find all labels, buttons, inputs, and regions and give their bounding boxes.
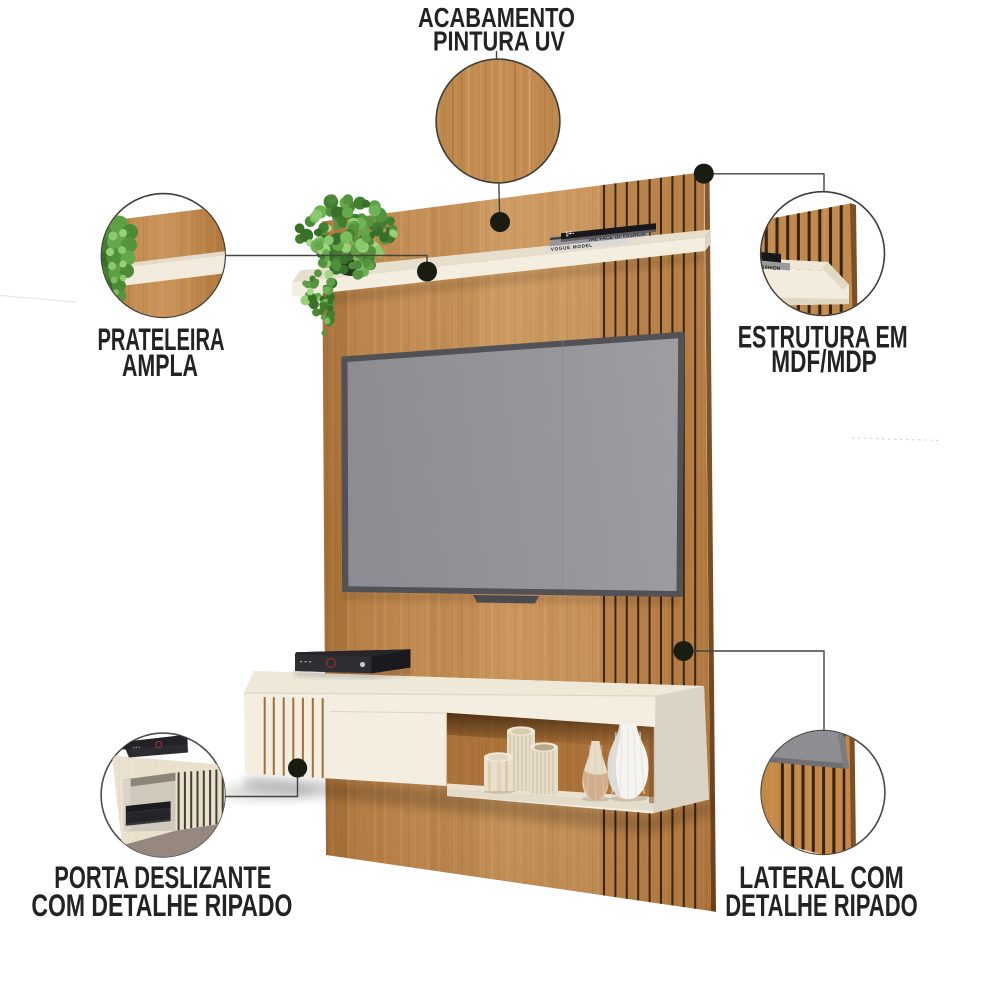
svg-text:MDF/MDP: MDF/MDP [771, 343, 877, 379]
svg-text:AMPLA: AMPLA [122, 347, 198, 383]
svg-text:DETALHE RIPADO: DETALHE RIPADO [725, 887, 918, 923]
svg-text:PINTURA UV: PINTURA UV [433, 26, 565, 57]
svg-text:COM DETALHE RIPADO: COM DETALHE RIPADO [31, 887, 292, 923]
